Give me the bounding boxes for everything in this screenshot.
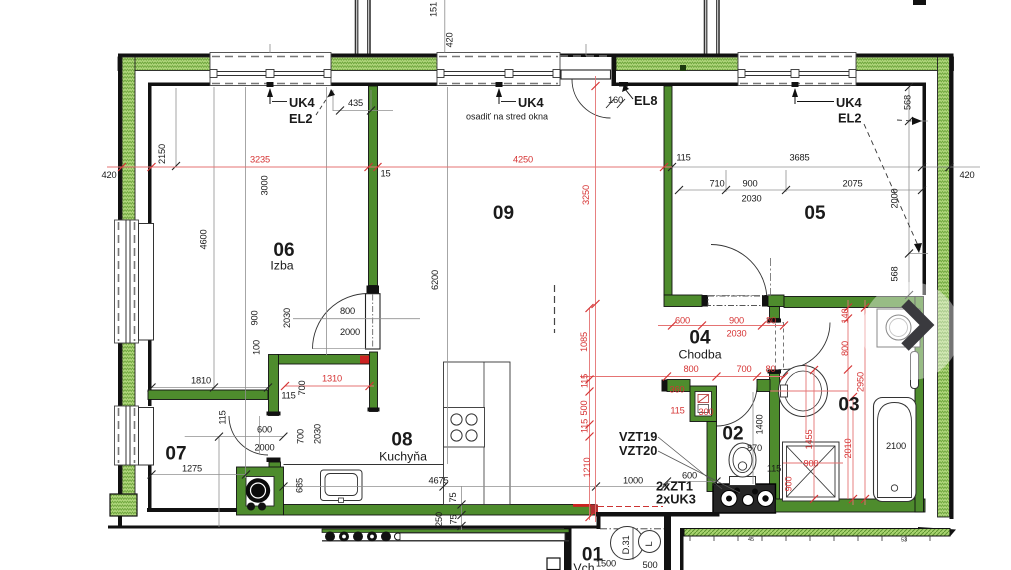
- svg-text:EL8: EL8: [634, 93, 657, 108]
- svg-text:500: 500: [643, 560, 658, 570]
- svg-text:4600: 4600: [199, 230, 209, 250]
- svg-text:1455: 1455: [804, 430, 814, 450]
- svg-text:osadiť na stred okna: osadiť na stred okna: [466, 112, 548, 122]
- svg-text:2150: 2150: [157, 144, 167, 164]
- svg-text:80: 80: [766, 364, 776, 374]
- svg-text:4675: 4675: [429, 476, 449, 486]
- svg-text:800: 800: [684, 364, 699, 374]
- svg-text:3250: 3250: [581, 185, 591, 205]
- svg-text:1085: 1085: [579, 332, 589, 352]
- svg-text:151: 151: [429, 2, 439, 17]
- svg-text:115: 115: [218, 410, 228, 424]
- svg-text:1310: 1310: [322, 374, 342, 384]
- svg-text:900: 900: [804, 459, 819, 469]
- svg-text:900: 900: [743, 179, 758, 189]
- svg-text:L: L: [644, 541, 654, 546]
- svg-text:100: 100: [252, 340, 262, 355]
- svg-text:3000: 3000: [260, 176, 270, 196]
- svg-text:420: 420: [102, 170, 117, 180]
- svg-text:300: 300: [699, 407, 714, 417]
- svg-text:2030: 2030: [742, 194, 762, 204]
- svg-text:115: 115: [767, 464, 781, 474]
- svg-text:EL2: EL2: [289, 111, 312, 126]
- svg-text:140: 140: [840, 309, 850, 324]
- svg-text:800: 800: [840, 341, 850, 356]
- svg-text:2030: 2030: [282, 308, 292, 328]
- svg-text:420: 420: [960, 170, 975, 180]
- svg-text:115: 115: [580, 374, 590, 388]
- svg-text:75: 75: [448, 493, 458, 503]
- svg-text:45: 45: [748, 537, 754, 543]
- svg-text:685: 685: [295, 478, 305, 493]
- svg-text:700: 700: [296, 429, 306, 444]
- svg-text:Izba: Izba: [270, 259, 293, 273]
- svg-text:420: 420: [445, 33, 455, 48]
- svg-text:568: 568: [903, 95, 913, 110]
- svg-text:2950: 2950: [856, 372, 866, 392]
- svg-text:568: 568: [890, 267, 900, 282]
- svg-text:Kuchyňa: Kuchyňa: [379, 450, 427, 464]
- svg-text:2000: 2000: [340, 327, 360, 337]
- svg-text:05: 05: [804, 203, 826, 224]
- svg-text:UK4: UK4: [518, 95, 544, 110]
- svg-text:09: 09: [493, 203, 514, 224]
- svg-text:435: 435: [348, 98, 363, 108]
- svg-text:115: 115: [580, 419, 590, 433]
- svg-text:1810: 1810: [191, 376, 211, 386]
- svg-text:3685: 3685: [790, 153, 810, 163]
- svg-text:800: 800: [340, 306, 355, 316]
- svg-text:2030: 2030: [727, 329, 747, 339]
- svg-text:600: 600: [675, 316, 690, 326]
- svg-text:360: 360: [670, 385, 685, 395]
- svg-text:02: 02: [722, 424, 743, 445]
- svg-text:D.31: D.31: [621, 536, 631, 555]
- svg-text:900: 900: [250, 311, 260, 326]
- svg-text:115: 115: [670, 406, 684, 416]
- svg-text:Vch: Vch: [573, 561, 594, 570]
- svg-text:6200: 6200: [430, 270, 440, 290]
- svg-text:1210: 1210: [582, 458, 592, 478]
- svg-text:700: 700: [737, 364, 752, 374]
- svg-text:870: 870: [747, 443, 762, 453]
- svg-text:04: 04: [689, 328, 711, 349]
- svg-text:1000: 1000: [623, 476, 643, 486]
- svg-text:700: 700: [297, 381, 307, 396]
- svg-text:EL2: EL2: [838, 111, 861, 126]
- svg-text:UK4: UK4: [836, 95, 862, 110]
- svg-text:1400: 1400: [755, 415, 765, 435]
- svg-text:2xUK3: 2xUK3: [656, 492, 696, 507]
- svg-text:07: 07: [165, 444, 186, 465]
- svg-text:115: 115: [676, 153, 690, 163]
- svg-text:75: 75: [449, 515, 459, 525]
- svg-text:900: 900: [784, 477, 794, 492]
- svg-text:VZT19: VZT19: [619, 429, 657, 444]
- svg-text:4250: 4250: [513, 155, 533, 165]
- svg-text:3235: 3235: [250, 155, 270, 165]
- svg-text:Chodba: Chodba: [678, 348, 721, 362]
- svg-text:2000: 2000: [255, 443, 275, 453]
- svg-text:08: 08: [391, 430, 412, 451]
- svg-text:2010: 2010: [843, 439, 853, 459]
- svg-text:1275: 1275: [182, 464, 202, 474]
- svg-text:900: 900: [729, 316, 744, 326]
- svg-text:115: 115: [281, 391, 295, 401]
- svg-text:15: 15: [381, 169, 391, 179]
- svg-text:2100: 2100: [886, 441, 906, 451]
- svg-text:710: 710: [710, 179, 725, 189]
- svg-text:53: 53: [901, 538, 907, 544]
- svg-text:2075: 2075: [843, 179, 863, 189]
- svg-text:500: 500: [579, 401, 589, 416]
- svg-text:80: 80: [766, 316, 776, 326]
- svg-text:2030: 2030: [313, 424, 323, 444]
- svg-text:03: 03: [838, 395, 859, 416]
- svg-text:250: 250: [434, 512, 444, 527]
- svg-text:VZT20: VZT20: [619, 443, 657, 458]
- svg-text:UK4: UK4: [289, 95, 315, 110]
- svg-text:600: 600: [257, 425, 272, 435]
